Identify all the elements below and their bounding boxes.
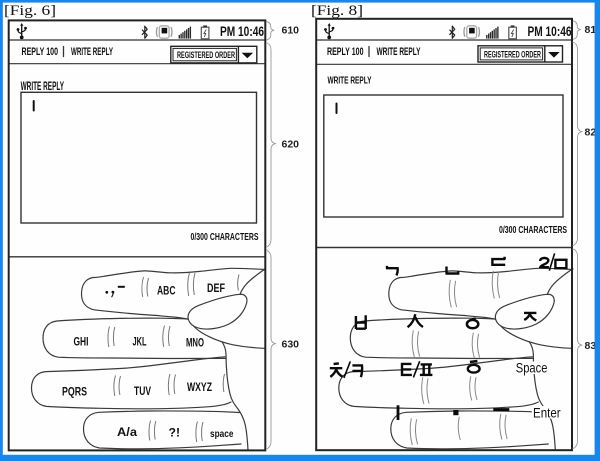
svg-text:630: 630 bbox=[282, 339, 300, 351]
svg-text:WRITE REPLY: WRITE REPLY bbox=[71, 46, 113, 58]
svg-text:Enter: Enter bbox=[533, 406, 561, 421]
svg-text:REPLY 100: REPLY 100 bbox=[22, 46, 59, 58]
svg-text:Space: Space bbox=[516, 361, 548, 376]
svg-text:WRITE REPLY: WRITE REPLY bbox=[21, 79, 64, 93]
svg-text:PQRS: PQRS bbox=[62, 387, 87, 399]
svg-text:A/a: A/a bbox=[117, 427, 138, 439]
svg-text:?!: ?! bbox=[169, 427, 181, 439]
svg-text:JKL: JKL bbox=[133, 336, 147, 348]
svg-text:620: 620 bbox=[282, 139, 300, 151]
svg-text:[Fig. 6]: [Fig. 6] bbox=[4, 3, 56, 19]
svg-text:space: space bbox=[210, 428, 234, 440]
svg-text:TUV: TUV bbox=[134, 386, 151, 398]
svg-text:MNO: MNO bbox=[186, 337, 204, 349]
svg-text:[Fig. 8]: [Fig. 8] bbox=[311, 3, 363, 19]
svg-text:REPLY 100: REPLY 100 bbox=[327, 46, 364, 58]
svg-text:DEF: DEF bbox=[207, 283, 225, 295]
svg-text:WRITE REPLY: WRITE REPLY bbox=[328, 74, 372, 86]
svg-text:0/300 CHARACTERS: 0/300 CHARACTERS bbox=[191, 231, 259, 243]
svg-text:REGISTERED ORDER: REGISTERED ORDER bbox=[484, 50, 541, 61]
svg-text:610: 610 bbox=[282, 25, 300, 37]
svg-text:WRITE REPLY: WRITE REPLY bbox=[377, 46, 421, 58]
svg-text:WXYZ: WXYZ bbox=[187, 382, 212, 394]
svg-text:ABC: ABC bbox=[157, 285, 176, 297]
svg-text:GHI: GHI bbox=[74, 336, 89, 348]
svg-text:0/300 CHARACTERS: 0/300 CHARACTERS bbox=[499, 224, 567, 236]
svg-text:PM 10:46: PM 10:46 bbox=[528, 24, 572, 39]
svg-text:REGISTERED ORDER: REGISTERED ORDER bbox=[177, 50, 235, 61]
svg-text:PM 10:46: PM 10:46 bbox=[220, 24, 264, 39]
